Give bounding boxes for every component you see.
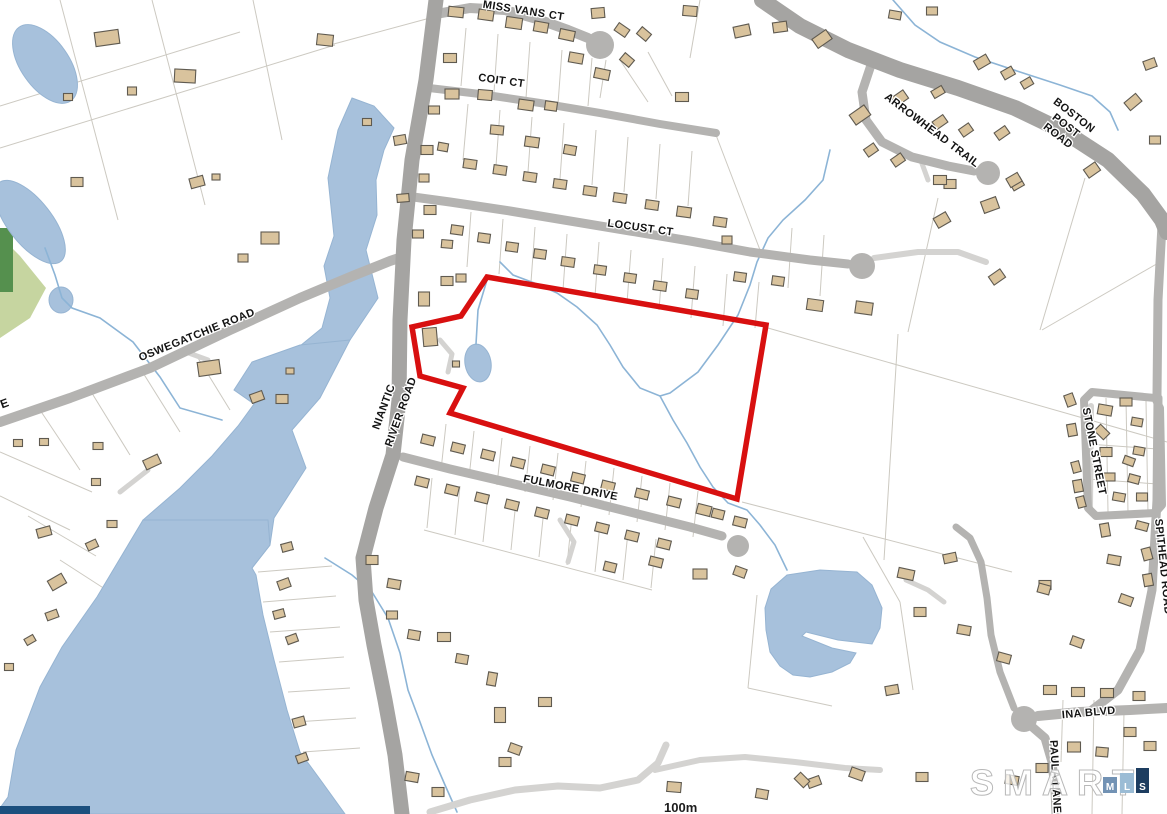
building [635, 488, 650, 500]
parcel-line [884, 334, 898, 560]
building [1068, 742, 1081, 752]
locust-culdesac [849, 253, 875, 279]
building [1001, 66, 1016, 80]
building [505, 499, 520, 511]
building [261, 232, 279, 244]
building [285, 633, 298, 644]
building [413, 230, 424, 238]
building [927, 7, 938, 15]
parcel-line [0, 496, 70, 530]
parcel-line [592, 130, 596, 185]
niantic-river-south [0, 520, 345, 814]
building [40, 439, 49, 446]
building [649, 556, 664, 568]
building [5, 664, 14, 671]
label-partial-e: E [0, 395, 11, 411]
building [477, 233, 490, 244]
building [363, 119, 372, 126]
building [733, 272, 746, 283]
building [645, 200, 659, 211]
parcel-line [152, 0, 205, 205]
building [281, 542, 294, 553]
parcel-line [620, 60, 648, 102]
building [128, 87, 137, 95]
building [93, 443, 103, 450]
parcel-line [461, 28, 466, 86]
building [593, 265, 606, 276]
building [1071, 461, 1082, 474]
building [563, 145, 576, 156]
building [276, 395, 288, 404]
building [888, 10, 901, 20]
building [441, 277, 453, 286]
parcel-line [526, 42, 530, 98]
building [539, 698, 552, 707]
building [1097, 404, 1113, 416]
green-area-dark [0, 228, 13, 292]
building [292, 716, 306, 728]
building [1099, 523, 1110, 537]
ina-roundabout [1011, 706, 1037, 732]
building [387, 611, 398, 619]
building [1020, 77, 1034, 89]
building [453, 361, 460, 367]
building [657, 538, 672, 550]
pond-left-small [49, 287, 73, 313]
building [475, 492, 490, 504]
building [174, 69, 196, 83]
parcel-line [0, 452, 92, 492]
building [897, 567, 915, 580]
building [620, 53, 635, 68]
building [1067, 423, 1078, 436]
building [393, 135, 406, 146]
parcel-line [330, 18, 430, 45]
building [1133, 692, 1145, 701]
parcel-line [467, 212, 471, 267]
road-shore-drive [120, 470, 148, 492]
building [1073, 479, 1084, 492]
building [733, 24, 751, 38]
map-canvas[interactable]: MISS VANS CTCOIT CTLOCUST CTARROWHEAD TR… [0, 0, 1167, 814]
building [505, 242, 518, 253]
watermark-letter-S: S [1139, 782, 1146, 793]
building [713, 217, 727, 228]
parcel-line [253, 0, 282, 140]
building [419, 174, 429, 182]
building [1128, 474, 1141, 485]
parcel-line [716, 135, 760, 250]
building [685, 289, 698, 300]
building [544, 101, 557, 112]
building [437, 142, 448, 152]
watermark-layer: SMARTMLS [970, 762, 1149, 803]
parcel-line [748, 595, 757, 688]
miss-vans-culdesac [586, 31, 614, 59]
building [273, 609, 286, 620]
building [772, 21, 787, 33]
parcel-line [303, 748, 360, 752]
building [864, 143, 879, 157]
building [1044, 686, 1057, 695]
building [653, 281, 667, 292]
building [441, 240, 453, 249]
building [565, 514, 580, 526]
road-locust-ct-east-drive [874, 252, 986, 262]
building [667, 781, 682, 792]
niantic-river-north [300, 98, 394, 352]
building [143, 454, 162, 470]
building [424, 206, 436, 215]
building [1100, 448, 1112, 457]
parcel-line [558, 50, 562, 104]
building [623, 273, 636, 284]
building [591, 7, 605, 18]
building [1144, 742, 1156, 751]
building [916, 773, 928, 782]
building [481, 449, 496, 461]
building [568, 52, 584, 64]
building [637, 27, 652, 42]
building [733, 566, 747, 579]
building [1112, 492, 1125, 502]
building [561, 257, 575, 268]
parcel-line [588, 58, 592, 106]
building [486, 672, 497, 686]
building [1137, 493, 1148, 501]
building [490, 125, 504, 135]
building [71, 178, 83, 187]
building [286, 368, 294, 374]
building [1124, 728, 1136, 737]
building [711, 508, 725, 520]
building [495, 708, 506, 723]
parcel-line [424, 530, 652, 590]
building [1120, 398, 1132, 406]
building [1143, 573, 1154, 586]
building [277, 578, 291, 591]
building [14, 440, 23, 447]
building [107, 521, 117, 528]
building [771, 276, 784, 287]
parcel-line [648, 52, 672, 96]
building [1131, 417, 1143, 427]
building [422, 327, 438, 346]
parcel-line [1040, 178, 1085, 330]
pond-parcel [462, 342, 494, 384]
building [450, 225, 463, 236]
parcel-line [288, 688, 350, 692]
road-notch-drive [440, 340, 452, 372]
building [885, 684, 899, 695]
road-fulmore-drive-south-drive [560, 520, 574, 562]
map-viewport: MISS VANS CTCOIT CTLOCUST CTARROWHEAD TR… [0, 0, 1167, 814]
arrowhead-culdesac [976, 161, 1000, 185]
building [24, 634, 36, 645]
building [407, 630, 420, 641]
building [64, 94, 73, 101]
building [415, 476, 430, 488]
parcel-line [263, 596, 336, 602]
building [316, 34, 333, 47]
water-layer [0, 0, 1118, 814]
watermark-letter-M: M [1106, 782, 1114, 793]
building [523, 172, 537, 183]
property-boundary [412, 277, 766, 499]
building [448, 6, 464, 18]
building [463, 159, 477, 170]
building [613, 193, 627, 204]
boundary-layer [412, 277, 766, 499]
building [432, 788, 444, 797]
building [794, 772, 810, 788]
parcel-line [900, 602, 913, 690]
road-path-bottom-1 [430, 745, 666, 812]
building [934, 176, 947, 185]
pond-southeast [765, 570, 882, 677]
building [421, 146, 433, 155]
road-pond-cluster-drive [906, 580, 944, 602]
building [189, 175, 205, 188]
building [45, 609, 59, 621]
building [444, 54, 457, 63]
building [583, 186, 597, 197]
parcel-line [463, 104, 468, 160]
building [455, 654, 468, 665]
building [499, 758, 511, 767]
watermark-smart-text: SMART [970, 762, 1143, 803]
building [1096, 747, 1109, 757]
building [693, 569, 707, 579]
parcel-line [624, 137, 628, 192]
building [683, 5, 698, 16]
building [1083, 162, 1100, 178]
building [511, 457, 526, 469]
parcel-line [656, 144, 660, 199]
building [614, 23, 630, 38]
label-ina-blvd: INA BLVD [1061, 705, 1116, 722]
parcel-line [258, 566, 332, 572]
building [1133, 446, 1145, 456]
building [524, 136, 539, 148]
building [959, 123, 974, 137]
parcel-line [499, 219, 503, 274]
building [914, 608, 926, 617]
label-coit-ct: COIT CT [477, 72, 525, 90]
parcel-line [270, 627, 340, 632]
building [733, 516, 748, 528]
parcel-line [748, 688, 832, 706]
building [594, 68, 611, 81]
building [508, 743, 522, 756]
building [366, 556, 378, 565]
building [94, 29, 120, 46]
building [676, 206, 691, 218]
building [1135, 521, 1149, 532]
building [855, 301, 874, 315]
building [1124, 93, 1142, 110]
scale-label: 100m [664, 800, 697, 814]
building [1150, 136, 1161, 144]
parcel-line [279, 657, 344, 662]
watermark-letter-L: L [1124, 782, 1130, 793]
parcel-line [496, 110, 500, 166]
building [553, 179, 567, 190]
road-boston-post-connector [1157, 225, 1162, 395]
building [722, 236, 732, 244]
building [429, 106, 440, 114]
building [421, 434, 436, 446]
building [1143, 58, 1157, 71]
building [1064, 393, 1077, 407]
building [1101, 689, 1114, 698]
building [943, 552, 958, 564]
building [478, 89, 493, 100]
building [451, 442, 466, 454]
parcel-line [768, 328, 1167, 442]
building [92, 479, 101, 486]
building [493, 165, 507, 176]
parcel-line [1042, 262, 1160, 330]
building [988, 269, 1005, 285]
building [438, 633, 451, 642]
building [1072, 688, 1085, 697]
building [419, 292, 430, 306]
building [595, 522, 610, 534]
building [1070, 636, 1084, 649]
building [47, 573, 66, 591]
fulmore-culdesac [727, 535, 749, 557]
building [518, 99, 534, 111]
building [533, 249, 546, 260]
building [456, 274, 466, 282]
scale-bar [0, 806, 90, 814]
building [85, 539, 98, 551]
building [535, 507, 550, 519]
building [533, 21, 549, 33]
building [36, 526, 52, 538]
parcel-line [688, 151, 692, 206]
building [957, 624, 971, 635]
building [933, 212, 951, 229]
building [696, 503, 712, 516]
building [238, 254, 248, 262]
building [676, 93, 689, 102]
building [667, 496, 682, 508]
road-path-bottom-2 [655, 757, 880, 770]
building [445, 484, 460, 496]
building [405, 771, 419, 782]
building [212, 174, 220, 180]
building [387, 578, 401, 589]
building [505, 16, 522, 29]
building [445, 89, 459, 99]
building [397, 193, 410, 202]
building [541, 464, 556, 476]
building [806, 298, 823, 311]
building [197, 360, 221, 377]
building [994, 126, 1010, 141]
building [1107, 554, 1121, 565]
road-ina-northwest-road [956, 527, 1014, 708]
building [980, 197, 999, 214]
building [1118, 594, 1133, 607]
building [1122, 455, 1135, 466]
building [603, 561, 617, 573]
road-coit-ct [429, 88, 716, 133]
building [755, 789, 768, 800]
